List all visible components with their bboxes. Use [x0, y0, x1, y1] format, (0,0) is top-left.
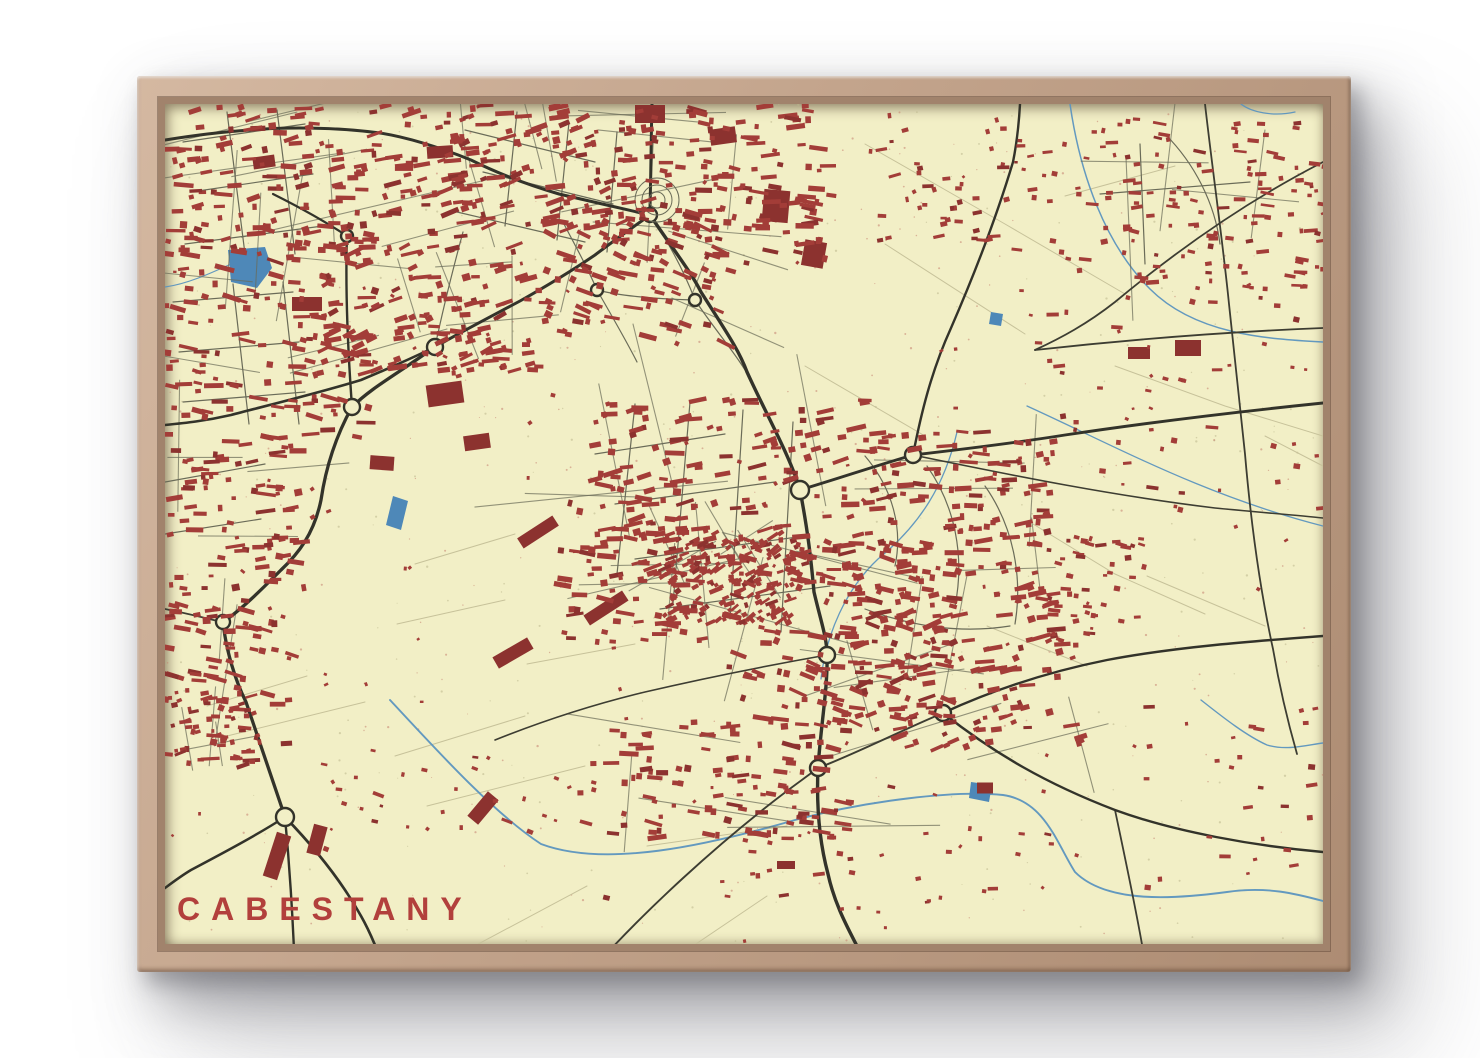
map-paper: CABESTANY [165, 104, 1323, 944]
roundabouts-layer [216, 208, 951, 826]
poster-frame: CABESTANY [137, 76, 1351, 972]
ponds-layer [228, 247, 1003, 802]
page-background: { "poster": { "title": "CABESTANY", "tit… [0, 0, 1480, 1058]
city-map-svg: CABESTANY [165, 104, 1323, 944]
map-title: CABESTANY [177, 891, 473, 927]
